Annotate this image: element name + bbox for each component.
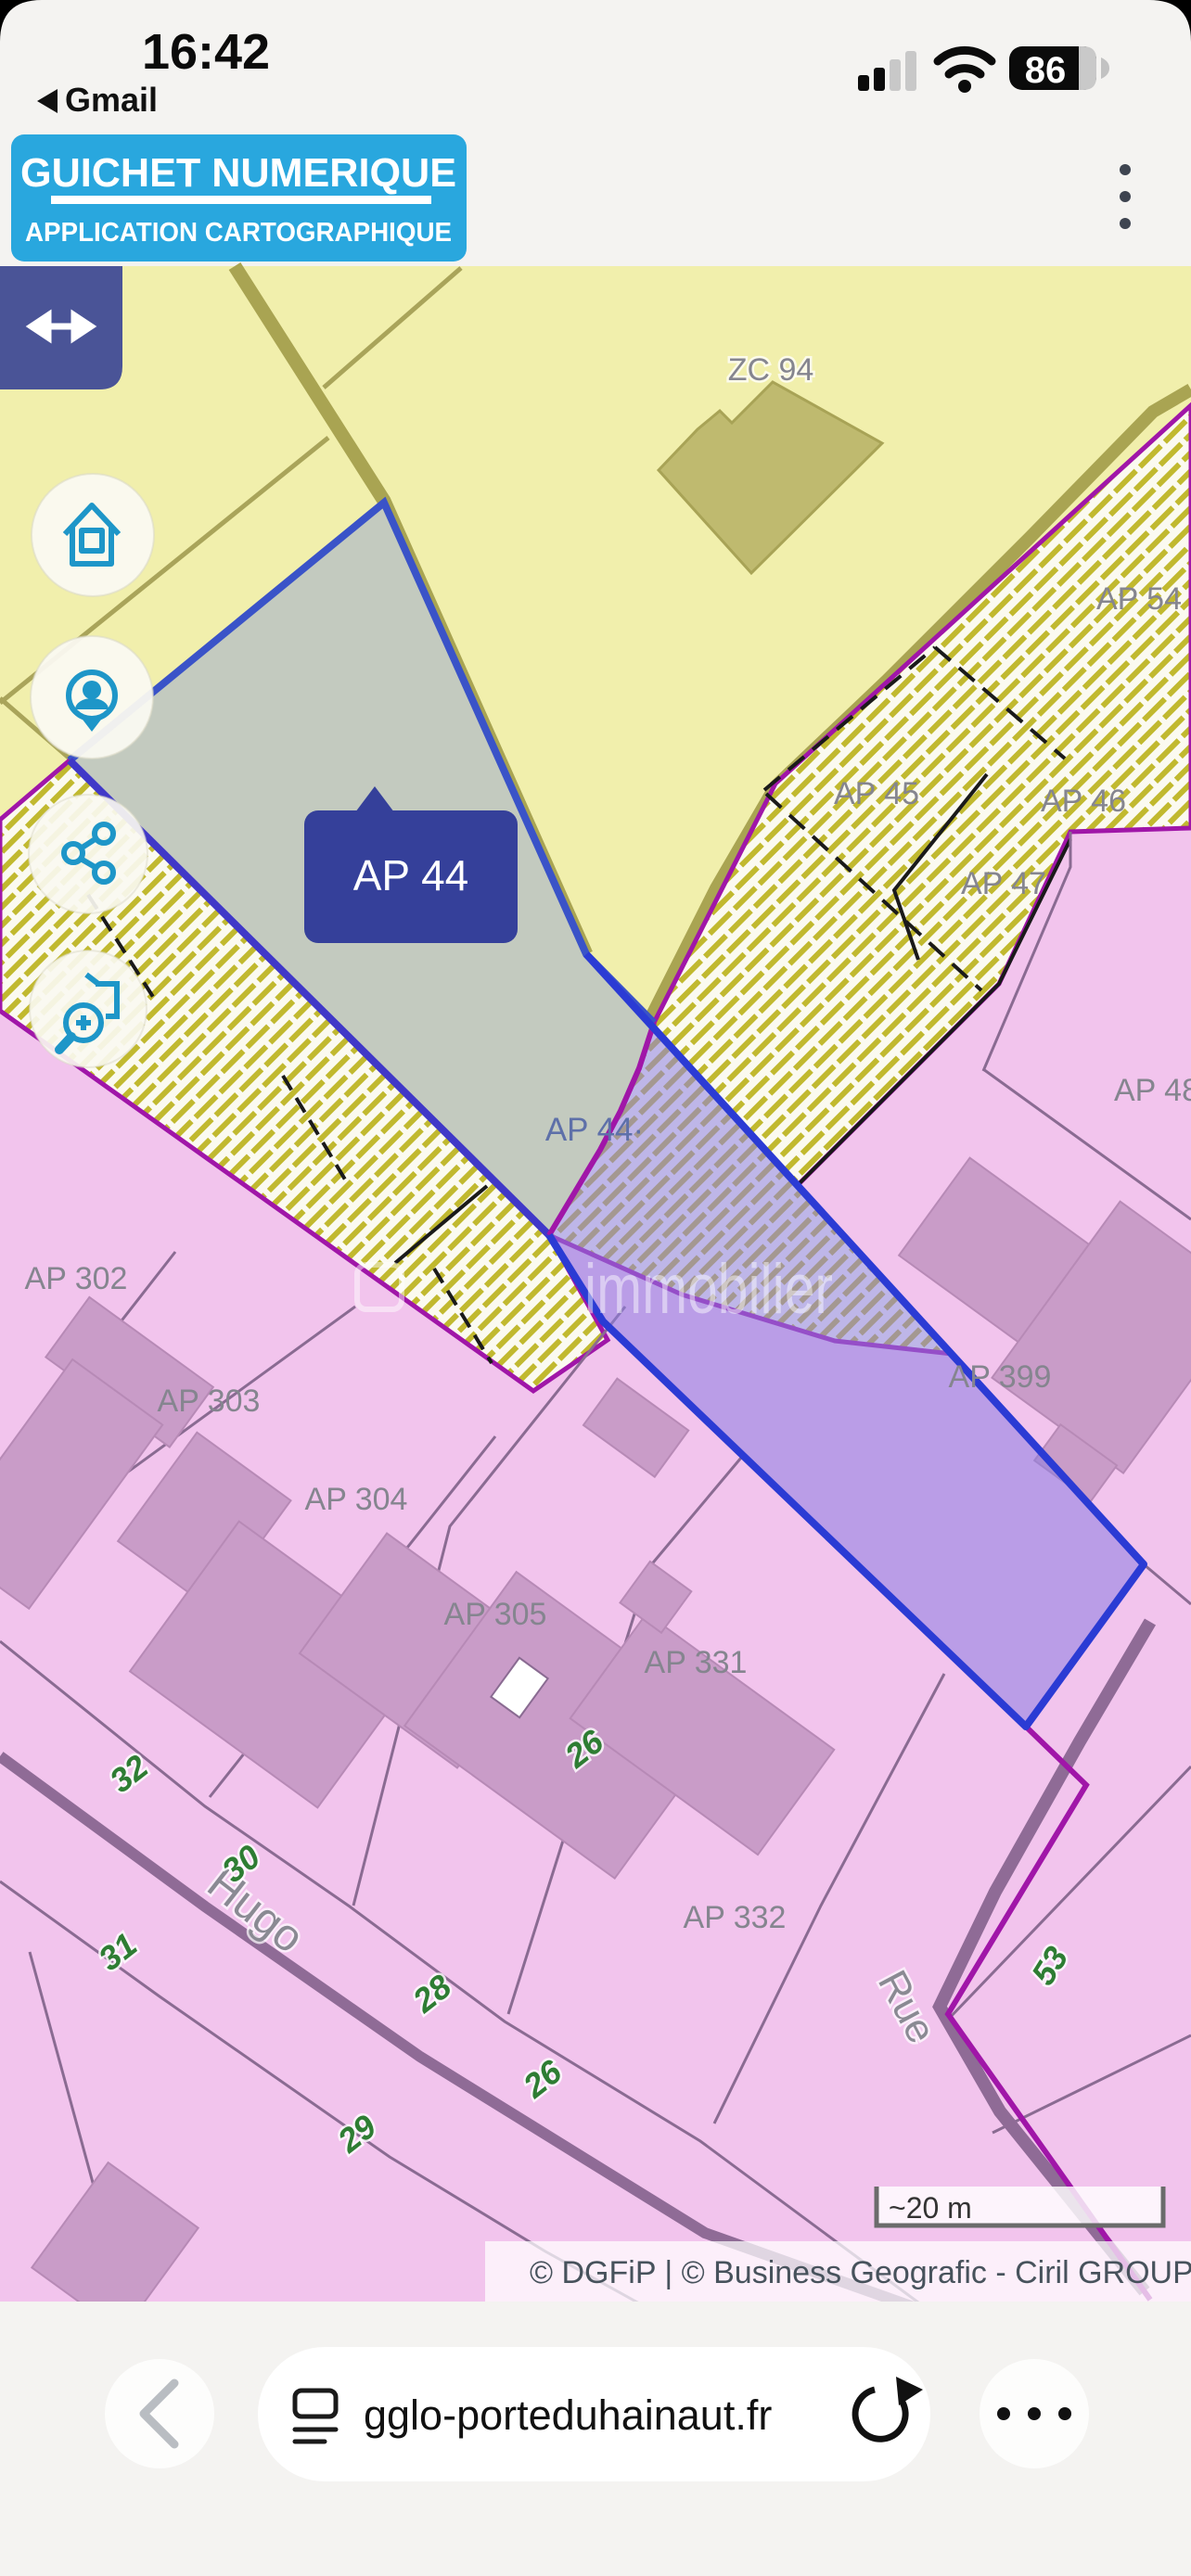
svg-text:gglo-porteduhainaut.fr: gglo-porteduhainaut.fr xyxy=(364,2391,772,2439)
svg-text:AP 44: AP 44 xyxy=(353,851,468,899)
svg-text:GUICHET NUMERIQUE: GUICHET NUMERIQUE xyxy=(20,150,456,196)
svg-text:16:42: 16:42 xyxy=(142,24,270,80)
svg-text:Gmail: Gmail xyxy=(65,81,158,119)
svg-text:86: 86 xyxy=(1025,50,1067,91)
svg-text:APPLICATION CARTOGRAPHIQUE: APPLICATION CARTOGRAPHIQUE xyxy=(25,218,452,248)
